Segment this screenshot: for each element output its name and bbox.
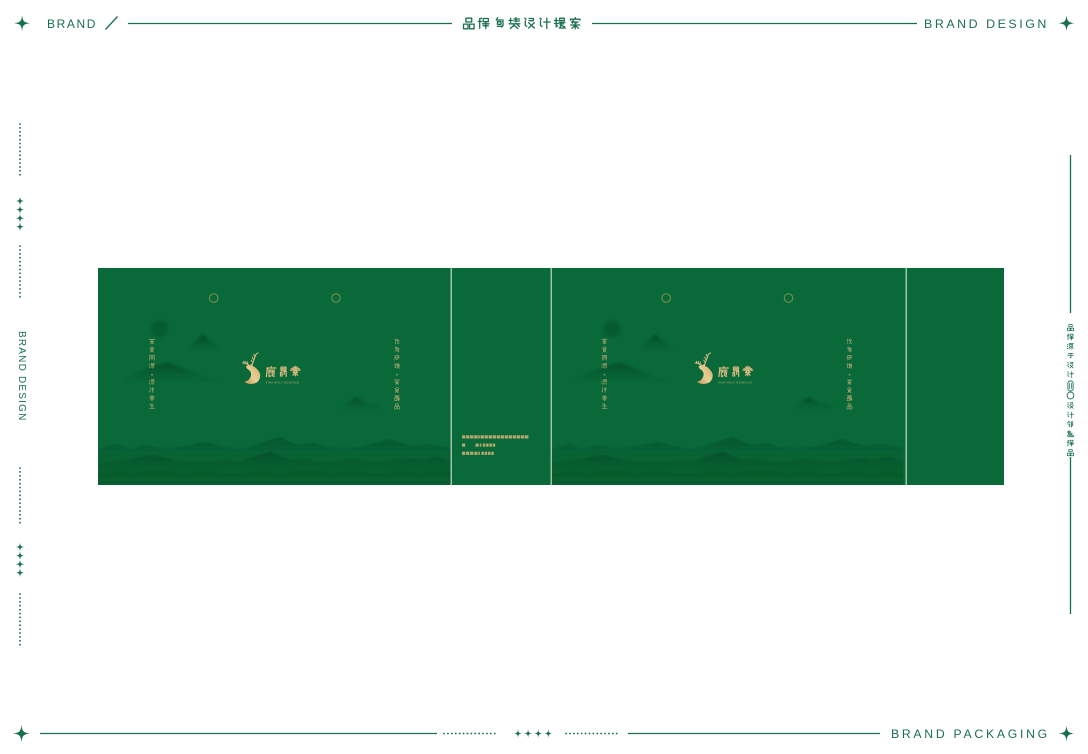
svg-text:BRAND DESIGN: BRAND DESIGN [924,17,1049,31]
svg-text:XINA HOLY ESSENCE: XINA HOLY ESSENCE [718,380,752,384]
svg-text:BRAND: BRAND [47,17,97,31]
svg-text:BRAND PACKAGING: BRAND PACKAGING [891,727,1050,741]
svg-text:XINA HOLY ESSENCE: XINA HOLY ESSENCE [266,380,300,384]
